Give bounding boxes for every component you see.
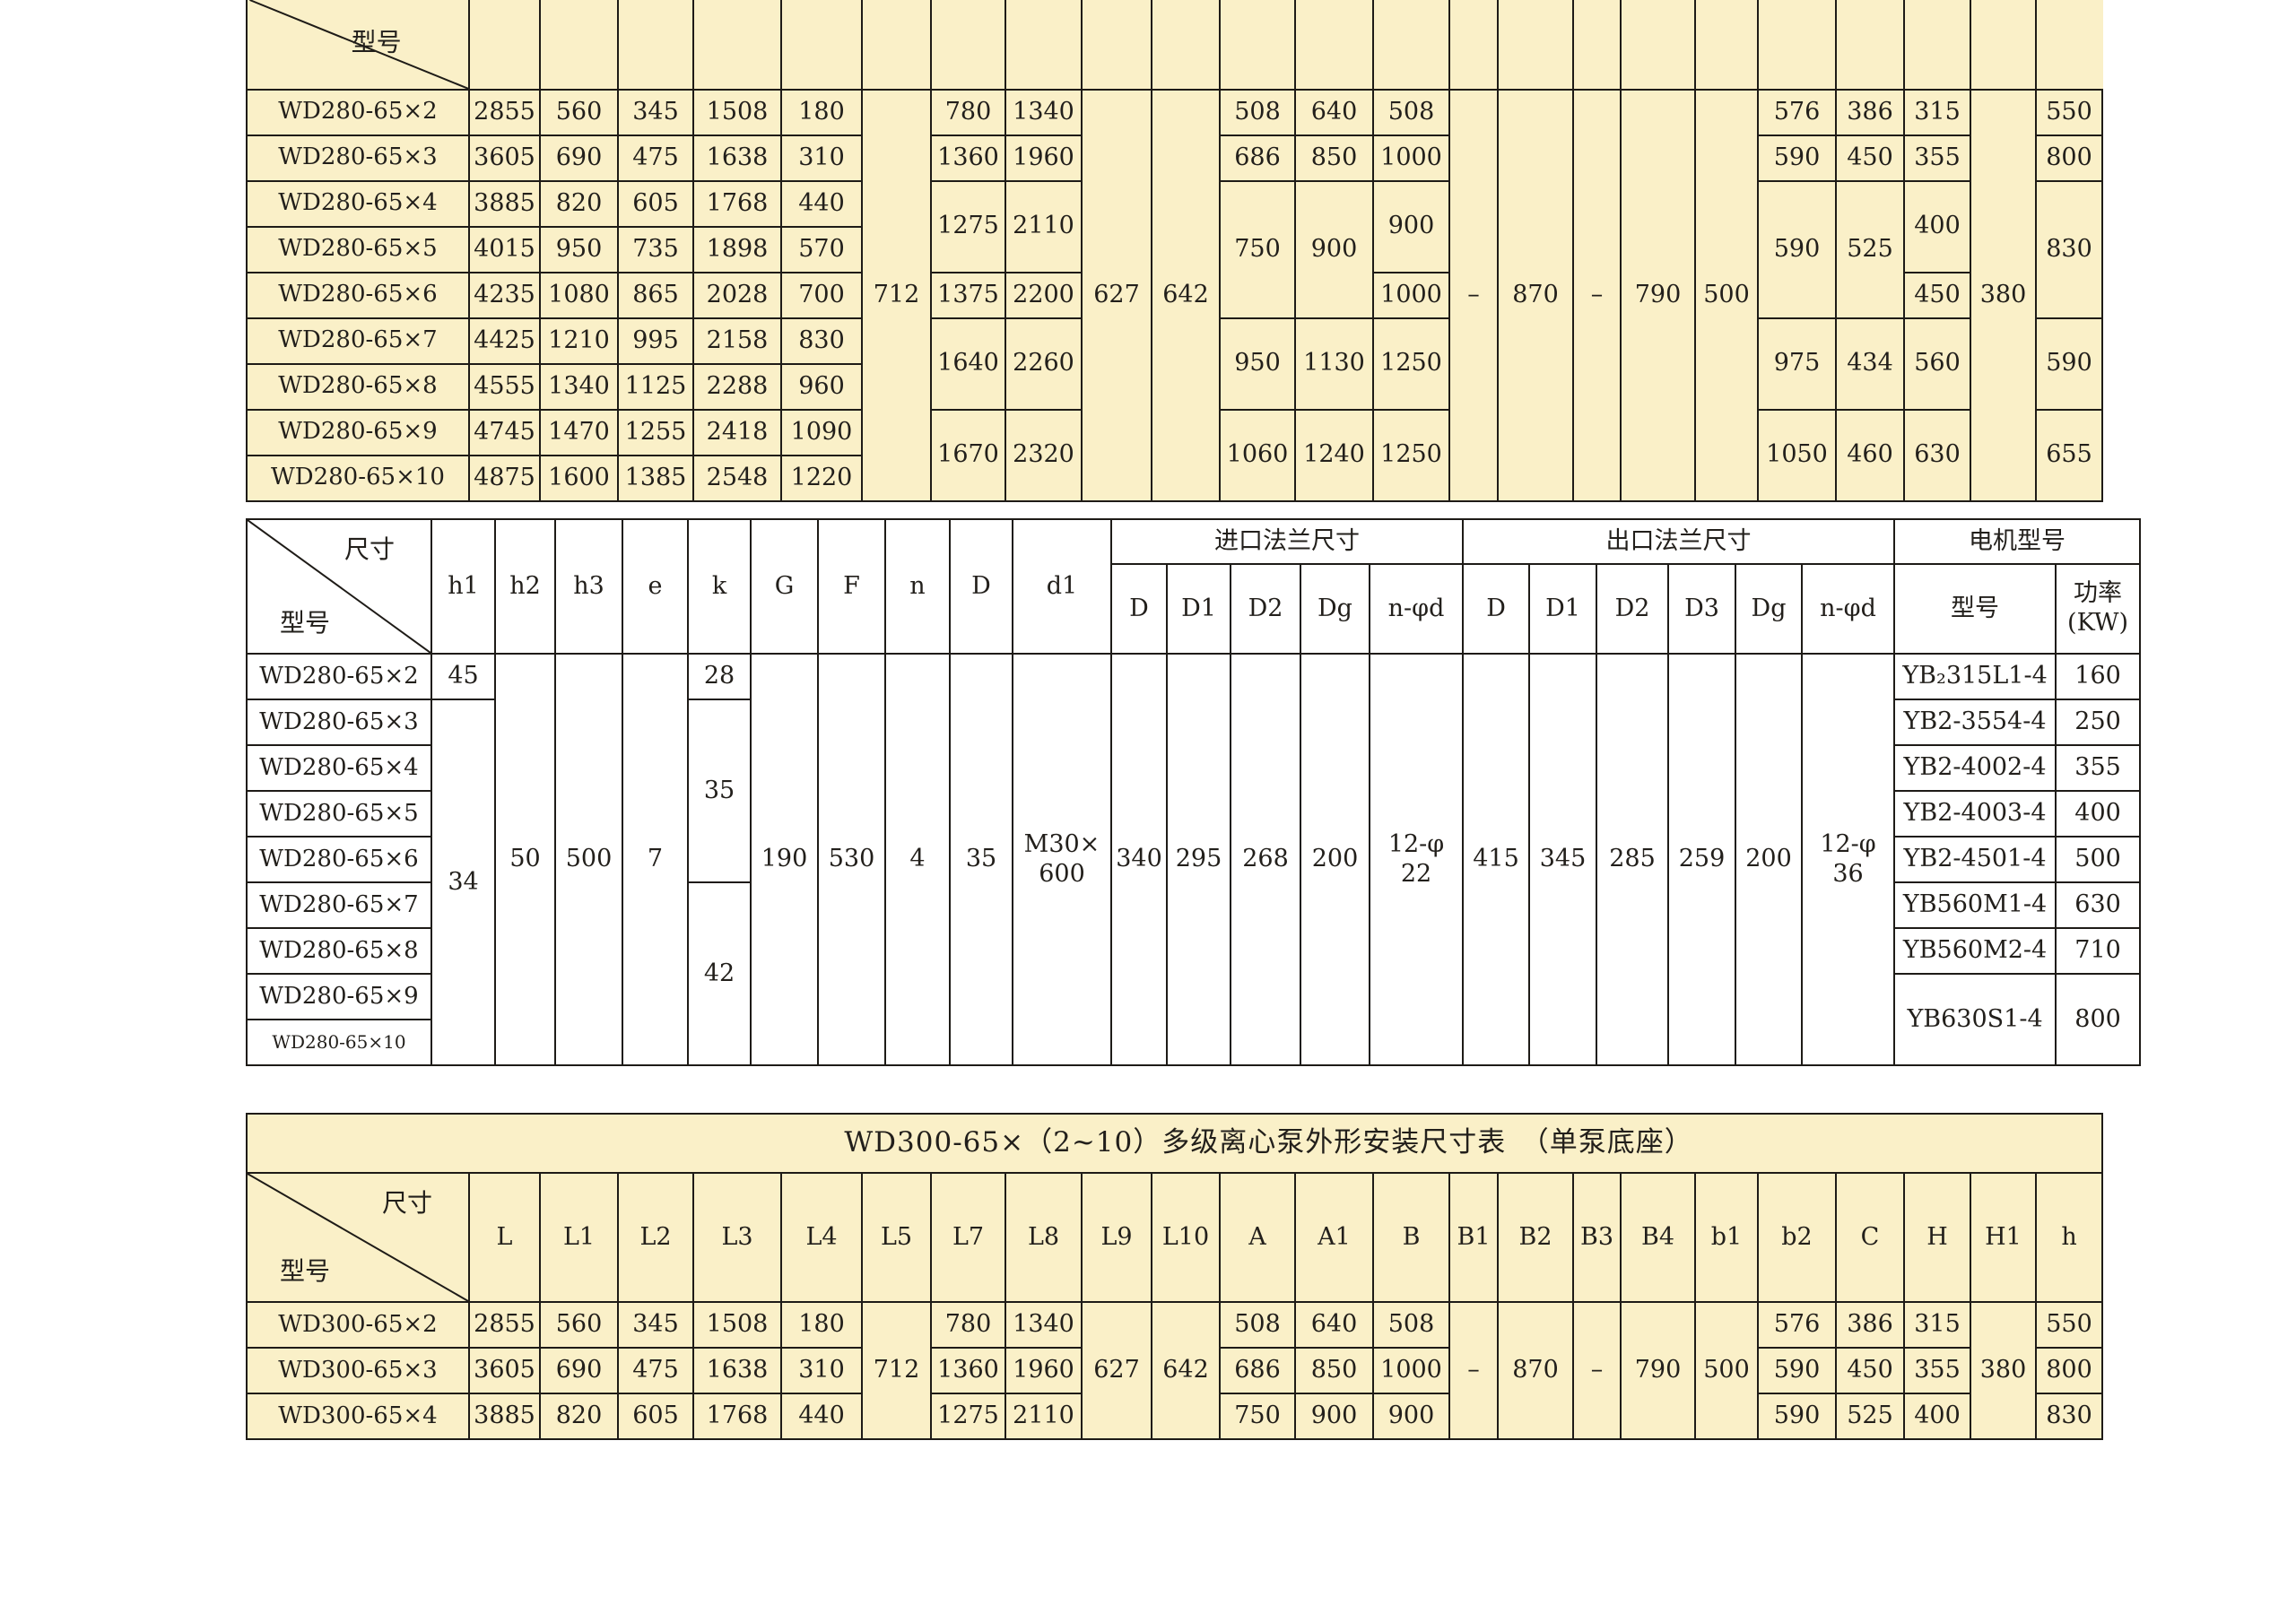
cell: 627 xyxy=(1082,90,1152,501)
table-title: WD300-65×（2~10）多级离心泵外形安装尺寸表 （单泵底座） xyxy=(247,1114,2102,1173)
motor-group-header: 电机型号 xyxy=(1894,519,2140,564)
header-cell: L8 xyxy=(1005,1173,1082,1302)
cell: 642 xyxy=(1152,90,1220,501)
header-cell: H1 xyxy=(1970,1173,2036,1302)
cell: 12-φ 36 xyxy=(1802,654,1894,1065)
table-row: 尺寸 型号 h1 h2 h3 e k G F n D d1 进口法兰尺寸 出口法… xyxy=(247,519,2140,564)
header-cell: D xyxy=(1111,564,1167,654)
diagonal-line xyxy=(248,520,430,653)
motor-model-cell: YB2-4002-4 xyxy=(1894,745,2056,791)
empty-header-cell xyxy=(1498,0,1573,90)
empty-header-cell xyxy=(1758,0,1836,90)
empty-header-cell xyxy=(1005,0,1082,90)
cell: 345 xyxy=(1529,654,1596,1065)
cell: 850 xyxy=(1295,1348,1373,1393)
cell: 50 xyxy=(495,654,555,1065)
model-cell: WD280-65×6 xyxy=(247,273,469,318)
cell: 259 xyxy=(1668,654,1735,1065)
cell: 1340 xyxy=(540,364,618,410)
cell: 1600 xyxy=(540,456,618,501)
cell: 2158 xyxy=(693,318,781,364)
cell: 508 xyxy=(1220,1302,1295,1348)
cell: 3605 xyxy=(469,135,540,181)
cell: 975 xyxy=(1758,318,1836,410)
cell: 2288 xyxy=(693,364,781,410)
cell: 450 xyxy=(1904,273,1970,318)
cell: 1000 xyxy=(1373,273,1449,318)
cell: 285 xyxy=(1596,654,1668,1065)
cell: 627 xyxy=(1082,1302,1152,1439)
cell: 530 xyxy=(818,654,885,1065)
motor-power-cell: 160 xyxy=(2056,654,2140,699)
cell: 3885 xyxy=(469,181,540,227)
header-cell: Dg xyxy=(1300,564,1370,654)
cell: 500 xyxy=(555,654,622,1065)
empty-header-cell xyxy=(1695,0,1758,90)
table-row: 型号 xyxy=(247,0,2102,90)
cell: 525 xyxy=(1836,1393,1904,1439)
empty-header-cell xyxy=(693,0,781,90)
cell: 475 xyxy=(618,1348,693,1393)
cell: 2548 xyxy=(693,456,781,501)
cell: 3885 xyxy=(469,1393,540,1439)
cell: 386 xyxy=(1836,1302,1904,1348)
cell: – xyxy=(1573,1302,1621,1439)
motor-model-cell: YB2-4501-4 xyxy=(1894,837,2056,882)
cell: 475 xyxy=(618,135,693,181)
model-cell: WD280-65×9 xyxy=(247,974,431,1020)
cell: 1360 xyxy=(931,135,1005,181)
empty-header-cell xyxy=(1082,0,1152,90)
header-cell: n-φd xyxy=(1802,564,1894,654)
model-label: 型号 xyxy=(352,28,402,58)
cell: 995 xyxy=(618,318,693,364)
cell: 440 xyxy=(781,181,862,227)
empty-header-cell xyxy=(1573,0,1621,90)
cell: 2855 xyxy=(469,1302,540,1348)
empty-header-cell xyxy=(469,0,540,90)
cell: 2855 xyxy=(469,90,540,135)
cell: 900 xyxy=(1373,181,1449,273)
header-cell: H xyxy=(1904,1173,1970,1302)
header-cell: h2 xyxy=(495,519,555,654)
model-cell: WD280-65×3 xyxy=(247,699,431,745)
cell: 1275 xyxy=(931,181,1005,273)
empty-header-cell xyxy=(1152,0,1220,90)
header-cell: B1 xyxy=(1449,1173,1498,1302)
empty-header-cell xyxy=(781,0,862,90)
cell: 340 xyxy=(1111,654,1167,1065)
header-cell: B2 xyxy=(1498,1173,1573,1302)
cell: 1768 xyxy=(693,181,781,227)
table-row: WD300-65×2 2855 560 345 1508 180 712 780… xyxy=(247,1302,2102,1348)
cell: 820 xyxy=(540,1393,618,1439)
cell: 900 xyxy=(1295,1393,1373,1439)
cell: 870 xyxy=(1498,90,1573,501)
cell: 850 xyxy=(1295,135,1373,181)
cell: 640 xyxy=(1295,1302,1373,1348)
header-cell: 型号 xyxy=(1894,564,2056,654)
motor-model-cell: YB630S1-4 xyxy=(1894,974,2056,1065)
cell: 560 xyxy=(1904,318,1970,410)
header-cell: n-φd xyxy=(1370,564,1463,654)
empty-header-cell xyxy=(862,0,931,90)
cell: 2260 xyxy=(1005,318,1082,410)
document-page: 型号 WD280-65×2 2855 560 345 1508 180 712 … xyxy=(0,0,2296,1623)
motor-power-cell: 710 xyxy=(2056,928,2140,974)
cell: 830 xyxy=(781,318,862,364)
model-cell: WD280-65×7 xyxy=(247,882,431,928)
cell: 200 xyxy=(1735,654,1802,1065)
table-row: WD300-65×（2~10）多级离心泵外形安装尺寸表 （单泵底座） xyxy=(247,1114,2102,1173)
cell: 690 xyxy=(540,1348,618,1393)
cell: 28 xyxy=(688,654,751,699)
cell: 1638 xyxy=(693,135,781,181)
cell: 700 xyxy=(781,273,862,318)
cell: 4425 xyxy=(469,318,540,364)
cell: 268 xyxy=(1231,654,1300,1065)
header-cell: D2 xyxy=(1596,564,1668,654)
size-label: 尺寸 xyxy=(344,534,395,565)
model-label: 型号 xyxy=(280,1256,330,1287)
header-cell: k xyxy=(688,519,751,654)
motor-power-cell: 400 xyxy=(2056,791,2140,837)
cell: 7 xyxy=(622,654,688,1065)
cell: 440 xyxy=(781,1393,862,1439)
cell: 1250 xyxy=(1373,318,1449,410)
header-cell: n xyxy=(885,519,950,654)
header-cell: A xyxy=(1220,1173,1295,1302)
cell: 800 xyxy=(2036,1348,2102,1393)
cell: 45 xyxy=(431,654,495,699)
model-cell: WD280-65×4 xyxy=(247,181,469,227)
cell: 790 xyxy=(1621,1302,1695,1439)
model-label: 型号 xyxy=(280,608,330,638)
cell: 1125 xyxy=(618,364,693,410)
empty-header-cell xyxy=(1449,0,1498,90)
header-cell: D1 xyxy=(1167,564,1231,654)
cell: 1000 xyxy=(1373,135,1449,181)
cell: 1670 xyxy=(931,410,1005,501)
cell: 780 xyxy=(931,1302,1005,1348)
header-cell: h1 xyxy=(431,519,495,654)
cell: 870 xyxy=(1498,1302,1573,1439)
cell: 830 xyxy=(2036,1393,2102,1439)
cell: 1898 xyxy=(693,227,781,273)
motor-model-cell: YB560M1-4 xyxy=(1894,882,2056,928)
cell: 180 xyxy=(781,90,862,135)
motor-power-cell: 250 xyxy=(2056,699,2140,745)
size-label: 尺寸 xyxy=(382,1188,432,1219)
cell: 820 xyxy=(540,181,618,227)
motor-model-cell: YB560M2-4 xyxy=(1894,928,2056,974)
cell: 1000 xyxy=(1373,1348,1449,1393)
cell: 1340 xyxy=(1005,1302,1082,1348)
cell: 434 xyxy=(1836,318,1904,410)
cell: 200 xyxy=(1300,654,1370,1065)
cell: 355 xyxy=(1904,135,1970,181)
outlet-flange-group-header: 出口法兰尺寸 xyxy=(1463,519,1894,564)
cell: 1240 xyxy=(1295,410,1373,501)
cell: 1130 xyxy=(1295,318,1373,410)
corner-cell: 尺寸 型号 xyxy=(247,1173,469,1302)
cell: 655 xyxy=(2036,410,2102,501)
cell: 1340 xyxy=(1005,90,1082,135)
motor-power-cell: 800 xyxy=(2056,974,2140,1065)
wd280-outline-dimensions-table: 型号 WD280-65×2 2855 560 345 1508 180 712 … xyxy=(246,0,2103,502)
cell: 1385 xyxy=(618,456,693,501)
cell: 1090 xyxy=(781,410,862,456)
cell: 42 xyxy=(688,882,751,1065)
cell: 712 xyxy=(862,90,931,501)
header-cell: D xyxy=(1463,564,1529,654)
motor-power-cell: 500 xyxy=(2056,837,2140,882)
header-cell: L10 xyxy=(1152,1173,1220,1302)
cell: 508 xyxy=(1220,90,1295,135)
cell: 560 xyxy=(540,1302,618,1348)
cell: 560 xyxy=(540,90,618,135)
cell: 1360 xyxy=(931,1348,1005,1393)
cell: 310 xyxy=(781,135,862,181)
header-cell: d1 xyxy=(1013,519,1111,654)
header-cell: 功率 (KW) xyxy=(2056,564,2140,654)
cell: 2110 xyxy=(1005,1393,1082,1439)
cell: 4 xyxy=(885,654,950,1065)
empty-header-cell xyxy=(618,0,693,90)
cell: 830 xyxy=(2036,181,2102,318)
cell: 640 xyxy=(1295,90,1373,135)
cell: 4745 xyxy=(469,410,540,456)
model-cell: WD300-65×2 xyxy=(247,1302,469,1348)
cell: 900 xyxy=(1295,181,1373,318)
cell: 590 xyxy=(1758,1348,1836,1393)
cell: 1275 xyxy=(931,1393,1005,1439)
cell: 190 xyxy=(751,654,818,1065)
header-cell: B xyxy=(1373,1173,1449,1302)
cell: 550 xyxy=(2036,1302,2102,1348)
cell: 2200 xyxy=(1005,273,1082,318)
cell: 2320 xyxy=(1005,410,1082,501)
cell: 950 xyxy=(540,227,618,273)
cell: 315 xyxy=(1904,90,1970,135)
cell: 960 xyxy=(781,364,862,410)
model-cell: WD280-65×2 xyxy=(247,90,469,135)
cell: 2110 xyxy=(1005,181,1082,273)
cell: 712 xyxy=(862,1302,931,1439)
corner-cell: 型号 xyxy=(247,0,469,90)
wd280-flange-motor-table: 尺寸 型号 h1 h2 h3 e k G F n D d1 进口法兰尺寸 出口法… xyxy=(246,518,2141,1066)
cell: 550 xyxy=(2036,90,2102,135)
cell: 4875 xyxy=(469,456,540,501)
header-cell: L1 xyxy=(540,1173,618,1302)
cell: 2028 xyxy=(693,273,781,318)
cell: 590 xyxy=(1758,1393,1836,1439)
cell: 1960 xyxy=(1005,1348,1082,1393)
cell: 900 xyxy=(1373,1393,1449,1439)
header-cell: D2 xyxy=(1231,564,1300,654)
cell: 1255 xyxy=(618,410,693,456)
cell: 1508 xyxy=(693,1302,781,1348)
cell: 180 xyxy=(781,1302,862,1348)
cell: 380 xyxy=(1970,1302,2036,1439)
empty-header-cell xyxy=(1621,0,1695,90)
cell: 735 xyxy=(618,227,693,273)
cell: 950 xyxy=(1220,318,1295,410)
cell: 400 xyxy=(1904,1393,1970,1439)
cell: 460 xyxy=(1836,410,1904,501)
cell: 1470 xyxy=(540,410,618,456)
cell: 1060 xyxy=(1220,410,1295,501)
empty-header-cell xyxy=(1904,0,1970,90)
model-cell: WD280-65×6 xyxy=(247,837,431,882)
model-cell: WD280-65×2 xyxy=(247,654,431,699)
model-cell: WD280-65×10 xyxy=(247,456,469,501)
cell: 750 xyxy=(1220,1393,1295,1439)
cell: 780 xyxy=(931,90,1005,135)
table-row: WD280-65×2 45 50 500 7 28 190 530 4 35 M… xyxy=(247,654,2140,699)
header-cell: C xyxy=(1836,1173,1904,1302)
header-cell: L5 xyxy=(862,1173,931,1302)
cell: 576 xyxy=(1758,1302,1836,1348)
cell: 800 xyxy=(2036,135,2102,181)
header-cell: A1 xyxy=(1295,1173,1373,1302)
cell: 1220 xyxy=(781,456,862,501)
cell: M30× 600 xyxy=(1013,654,1111,1065)
header-cell: b1 xyxy=(1695,1173,1758,1302)
cell: 570 xyxy=(781,227,862,273)
header-cell: D xyxy=(950,519,1013,654)
cell: 4015 xyxy=(469,227,540,273)
table-row: WD280-65×2 2855 560 345 1508 180 712 780… xyxy=(247,90,2102,135)
cell: 1050 xyxy=(1758,410,1836,501)
cell: 630 xyxy=(1904,410,1970,501)
cell: 590 xyxy=(1758,181,1836,318)
empty-header-cell xyxy=(1836,0,1904,90)
header-cell: D3 xyxy=(1668,564,1735,654)
cell: 1080 xyxy=(540,273,618,318)
cell: 605 xyxy=(618,181,693,227)
cell: 295 xyxy=(1167,654,1231,1065)
cell: 508 xyxy=(1373,1302,1449,1348)
cell: 1508 xyxy=(693,90,781,135)
cell: – xyxy=(1573,90,1621,501)
empty-header-cell xyxy=(1220,0,1295,90)
header-cell: B3 xyxy=(1573,1173,1621,1302)
cell: 345 xyxy=(618,90,693,135)
header-cell: L2 xyxy=(618,1173,693,1302)
header-cell: h xyxy=(2036,1173,2102,1302)
header-cell: L xyxy=(469,1173,540,1302)
cell: 345 xyxy=(618,1302,693,1348)
model-cell: WD300-65×3 xyxy=(247,1348,469,1393)
model-cell: WD280-65×8 xyxy=(247,364,469,410)
cell: 4235 xyxy=(469,273,540,318)
table-row: 尺寸 型号 L L1 L2 L3 L4 L5 L7 L8 L9 L10 A A1… xyxy=(247,1173,2102,1302)
model-cell: WD280-65×3 xyxy=(247,135,469,181)
empty-header-cell xyxy=(931,0,1005,90)
cell: 790 xyxy=(1621,90,1695,501)
cell: 35 xyxy=(950,654,1013,1065)
cell: 4555 xyxy=(469,364,540,410)
cell: 525 xyxy=(1836,181,1904,318)
model-cell: WD300-65×4 xyxy=(247,1393,469,1439)
header-cell: L7 xyxy=(931,1173,1005,1302)
inlet-flange-group-header: 进口法兰尺寸 xyxy=(1111,519,1463,564)
cell: 508 xyxy=(1373,90,1449,135)
cell: 686 xyxy=(1220,1348,1295,1393)
cell: 2418 xyxy=(693,410,781,456)
cell: 3605 xyxy=(469,1348,540,1393)
motor-model-cell: YB₂315L1-4 xyxy=(1894,654,2056,699)
model-cell: WD280-65×4 xyxy=(247,745,431,791)
cell: 386 xyxy=(1836,90,1904,135)
cell: 1638 xyxy=(693,1348,781,1393)
empty-header-cell xyxy=(1295,0,1373,90)
cell: 686 xyxy=(1220,135,1295,181)
cell: – xyxy=(1449,1302,1498,1439)
header-cell: D1 xyxy=(1529,564,1596,654)
cell: 576 xyxy=(1758,90,1836,135)
cell: 415 xyxy=(1463,654,1529,1065)
cell: 590 xyxy=(1758,135,1836,181)
empty-header-cell xyxy=(540,0,618,90)
model-cell: WD280-65×7 xyxy=(247,318,469,364)
cell: 642 xyxy=(1152,1302,1220,1439)
cell: 750 xyxy=(1220,181,1295,318)
cell: 315 xyxy=(1904,1302,1970,1348)
header-cell: B4 xyxy=(1621,1173,1695,1302)
cell: – xyxy=(1449,90,1498,501)
cell: 1250 xyxy=(1373,410,1449,501)
wd300-outline-dimensions-table: WD300-65×（2~10）多级离心泵外形安装尺寸表 （单泵底座） 尺寸 型号… xyxy=(246,1113,2103,1440)
empty-header-cell xyxy=(1373,0,1449,90)
cell: 1640 xyxy=(931,318,1005,410)
cell: 1210 xyxy=(540,318,618,364)
cell: 380 xyxy=(1970,90,2036,501)
cell: 12-φ 22 xyxy=(1370,654,1463,1065)
header-cell: L3 xyxy=(693,1173,781,1302)
motor-model-cell: YB2-4003-4 xyxy=(1894,791,2056,837)
header-cell: L9 xyxy=(1082,1173,1152,1302)
header-cell: Dg xyxy=(1735,564,1802,654)
model-cell: WD280-65×9 xyxy=(247,410,469,456)
model-cell: WD280-65×5 xyxy=(247,227,469,273)
cell: 355 xyxy=(1904,1348,1970,1393)
cell: 500 xyxy=(1695,90,1758,501)
model-cell: WD280-65×10 xyxy=(247,1020,431,1065)
header-cell: G xyxy=(751,519,818,654)
cell: 1960 xyxy=(1005,135,1082,181)
corner-cell: 尺寸 型号 xyxy=(247,519,431,654)
cell: 605 xyxy=(618,1393,693,1439)
cell: 450 xyxy=(1836,1348,1904,1393)
model-cell: WD280-65×5 xyxy=(247,791,431,837)
cell: 34 xyxy=(431,699,495,1065)
cell: 310 xyxy=(781,1348,862,1393)
motor-model-cell: YB2-3554-4 xyxy=(1894,699,2056,745)
cell: 690 xyxy=(540,135,618,181)
motor-power-cell: 355 xyxy=(2056,745,2140,791)
cell: 590 xyxy=(2036,318,2102,410)
cell: 500 xyxy=(1695,1302,1758,1439)
cell: 1768 xyxy=(693,1393,781,1439)
header-cell: b2 xyxy=(1758,1173,1836,1302)
cell: 35 xyxy=(688,699,751,882)
cell: 865 xyxy=(618,273,693,318)
motor-power-cell: 630 xyxy=(2056,882,2140,928)
header-cell: L4 xyxy=(781,1173,862,1302)
header-cell: F xyxy=(818,519,885,654)
